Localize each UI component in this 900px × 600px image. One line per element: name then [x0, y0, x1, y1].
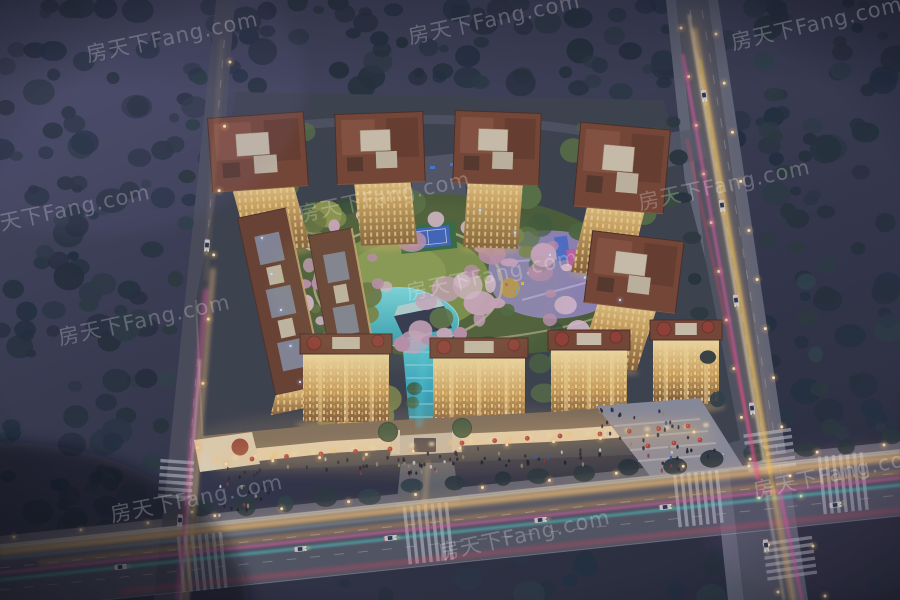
night-aerial-rendering: 房天下Fang.com 房天下Fang.com 房天下Fang.com 房天下F… [0, 0, 900, 600]
residential-complex-rendering: 房天下Fang.com 房天下Fang.com 房天下Fang.com 房天下F… [0, 0, 900, 600]
